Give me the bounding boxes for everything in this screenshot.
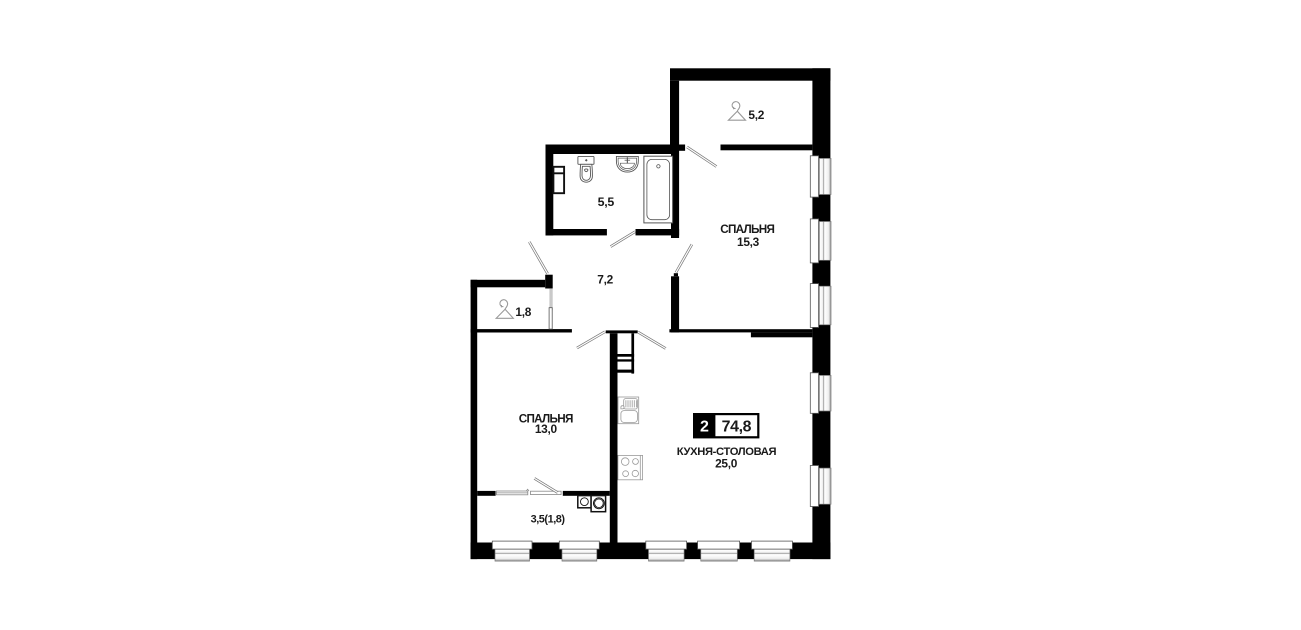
svg-text:7,2: 7,2 xyxy=(597,272,613,286)
svg-text:74,8: 74,8 xyxy=(722,418,752,435)
svg-text:2: 2 xyxy=(700,418,709,435)
svg-text:13,0: 13,0 xyxy=(535,422,558,436)
svg-text:1,8: 1,8 xyxy=(515,305,531,319)
svg-text:25,0: 25,0 xyxy=(715,456,738,470)
svg-text:15,3: 15,3 xyxy=(737,235,760,249)
svg-text:3,5(1,8): 3,5(1,8) xyxy=(531,514,566,526)
svg-text:5,2: 5,2 xyxy=(748,108,764,122)
svg-text:5,5: 5,5 xyxy=(598,195,615,209)
